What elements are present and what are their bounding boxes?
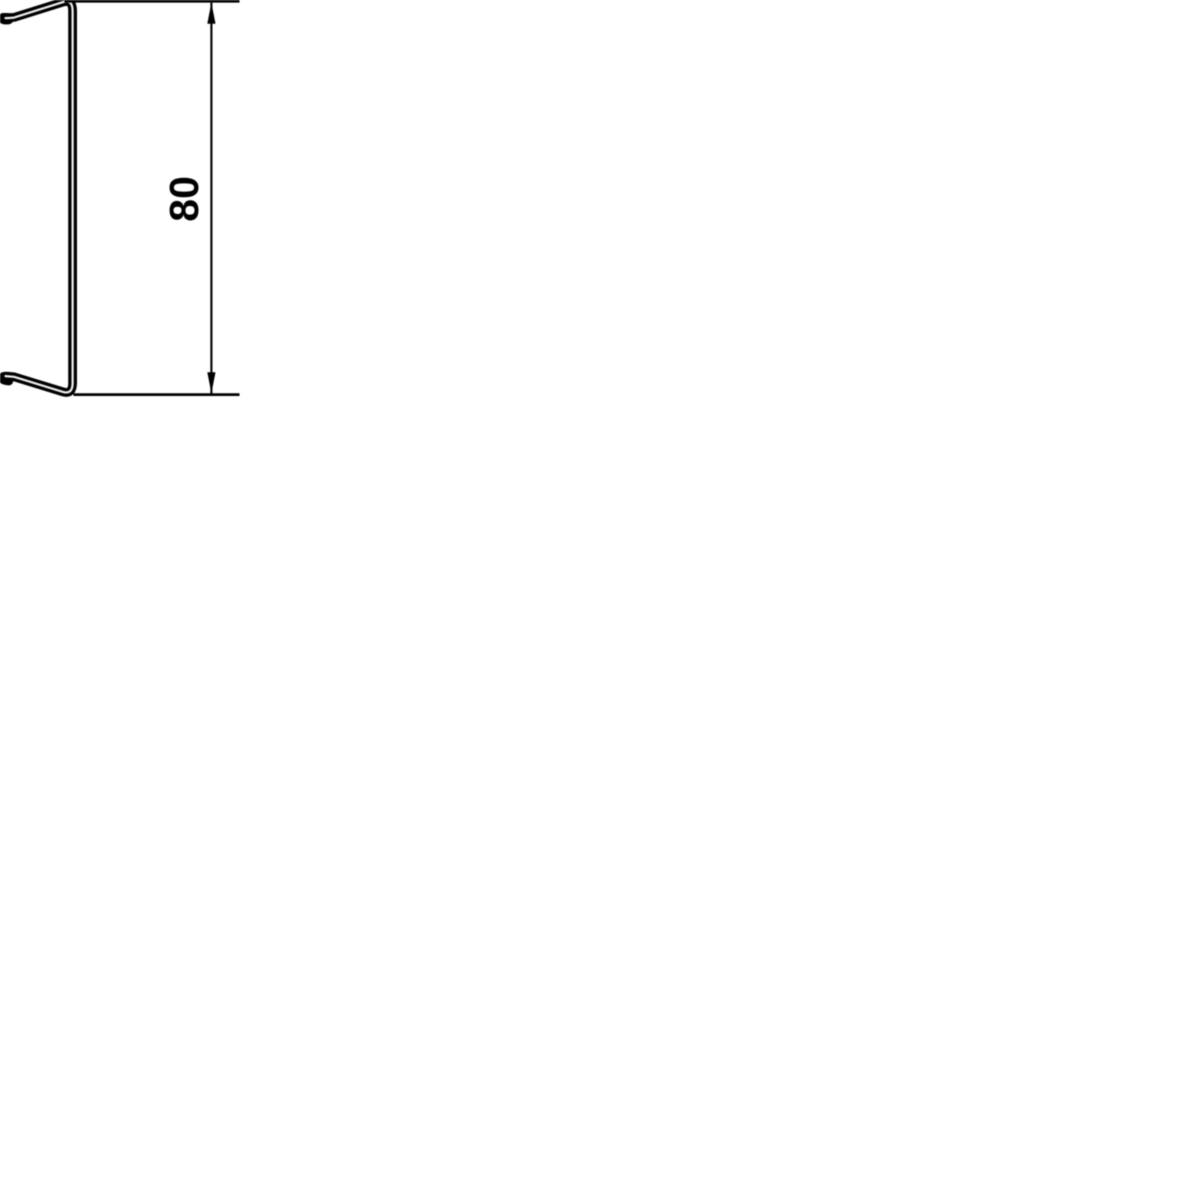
svg-text:80: 80 (161, 176, 207, 222)
